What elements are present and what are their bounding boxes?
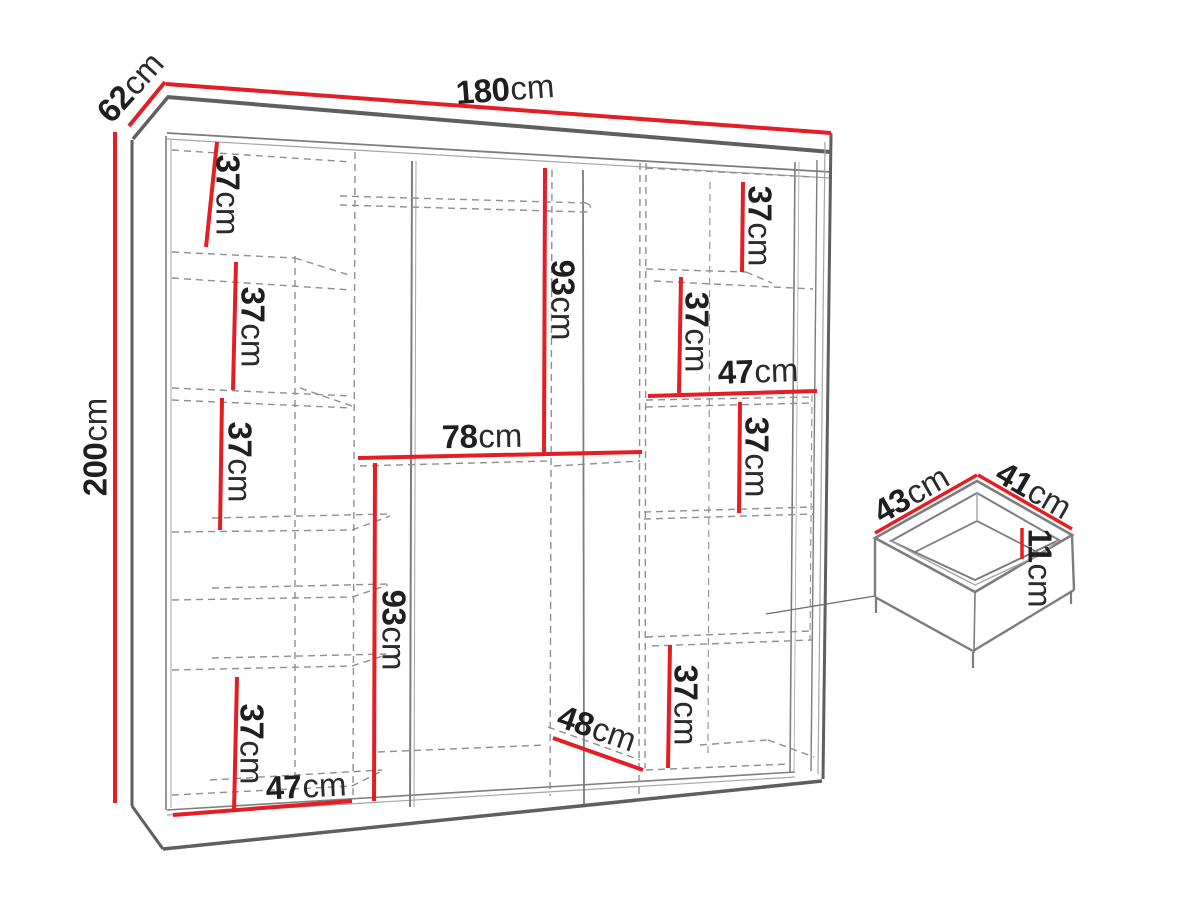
wardrobe-line-drawing <box>0 0 1200 900</box>
dim-unit: cm <box>301 765 347 804</box>
dim-unit: cm <box>1022 563 1059 607</box>
diagram-canvas: 180cm 62cm 200cm 37cm 37cm 37cm 37cm 47c… <box>0 0 1200 900</box>
dim-value: 93 <box>376 590 413 626</box>
dim-unit: cm <box>210 191 247 235</box>
dim-label-right-37-1: 37cm <box>744 186 777 267</box>
dim-label-right-47: 47cm <box>717 353 799 389</box>
dim-value: 37 <box>235 287 272 323</box>
dim-value: 47 <box>717 353 754 391</box>
dim-label-drawer-11: 11cm <box>1024 529 1057 608</box>
dim-label-height-200: 200cm <box>79 398 112 497</box>
dim-label-center-93-bottom: 93cm <box>378 590 411 671</box>
dim-unit: cm <box>742 222 779 266</box>
dim-unit: cm <box>77 398 114 442</box>
dim-label-right-37-2: 37cm <box>681 292 714 373</box>
dim-unit: cm <box>478 417 523 455</box>
dim-label-left-37-1: 37cm <box>212 155 245 236</box>
dim-value: 37 <box>742 186 779 222</box>
dim-unit: cm <box>668 701 705 745</box>
dim-label-left-37-4: 37cm <box>236 704 269 785</box>
dim-label-right-37-3: 37cm <box>741 417 774 498</box>
dim-value: 11 <box>1022 529 1059 563</box>
dim-unit: cm <box>376 626 413 670</box>
dim-value: 37 <box>210 155 247 191</box>
dim-unit: cm <box>739 453 776 497</box>
dim-value: 180 <box>454 70 510 111</box>
dim-value: 37 <box>679 292 716 328</box>
dim-unit: cm <box>679 328 716 372</box>
dim-label-left-47: 47cm <box>265 767 347 804</box>
dim-label-center-93-top: 93cm <box>547 260 580 341</box>
dim-unit: cm <box>545 296 582 340</box>
dim-line-right-47 <box>648 391 817 396</box>
dim-unit: cm <box>754 351 799 390</box>
dim-value: 37 <box>234 704 271 740</box>
dim-value: 37 <box>222 422 259 458</box>
dim-value: 37 <box>668 665 705 701</box>
dim-label-left-37-2: 37cm <box>237 287 270 368</box>
dim-unit: cm <box>222 458 259 502</box>
dim-value: 78 <box>441 418 477 456</box>
dim-value: 47 <box>265 768 303 807</box>
dim-label-right-37-bottom: 37cm <box>670 665 703 746</box>
dim-value: 200 <box>77 443 114 497</box>
cabinet-left-edges <box>132 136 171 849</box>
dim-unit: cm <box>509 67 556 107</box>
dim-value: 37 <box>739 417 776 453</box>
dim-unit: cm <box>235 323 272 367</box>
dim-label-left-37-3: 37cm <box>224 422 257 503</box>
interior-center-dashed <box>340 196 640 760</box>
dim-label-center-78: 78cm <box>441 419 522 453</box>
dim-label-width-180: 180cm <box>455 69 556 109</box>
dim-value: 93 <box>545 260 582 296</box>
cabinet-right-edges <box>811 133 831 779</box>
